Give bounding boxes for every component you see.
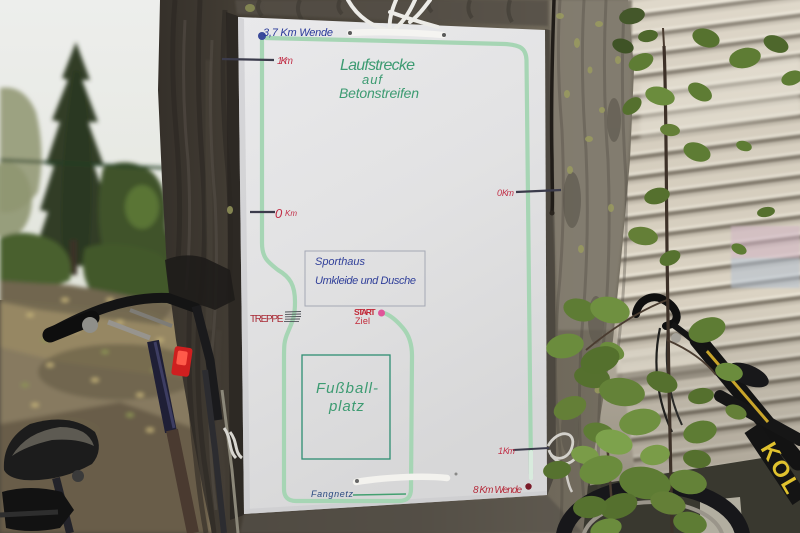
svg-text:8 Km Wende: 8 Km Wende: [473, 485, 522, 496]
svg-text:Fangnetz: Fangnetz: [311, 489, 354, 499]
svg-text:Ziel: Ziel: [355, 316, 370, 326]
svg-text:0 Km: 0 Km: [497, 188, 515, 198]
svg-text:1 Km: 1 Km: [277, 56, 293, 67]
svg-text:Umkleide und Dusche: Umkleide und Dusche: [315, 275, 416, 287]
svg-text:1 Km: 1 Km: [498, 446, 516, 456]
svg-text:TREPPE: TREPPE: [250, 314, 284, 325]
svg-text:Betonstreifen: Betonstreifen: [339, 85, 419, 101]
svg-text:3,7 Km Wende: 3,7 Km Wende: [263, 27, 333, 39]
svg-text:Km: Km: [285, 209, 297, 218]
svg-text:Sporthaus: Sporthaus: [315, 256, 366, 268]
svg-text:platz: platz: [328, 398, 365, 415]
svg-text:0: 0: [275, 206, 283, 221]
svg-text:Fußball-: Fußball-: [316, 380, 378, 397]
